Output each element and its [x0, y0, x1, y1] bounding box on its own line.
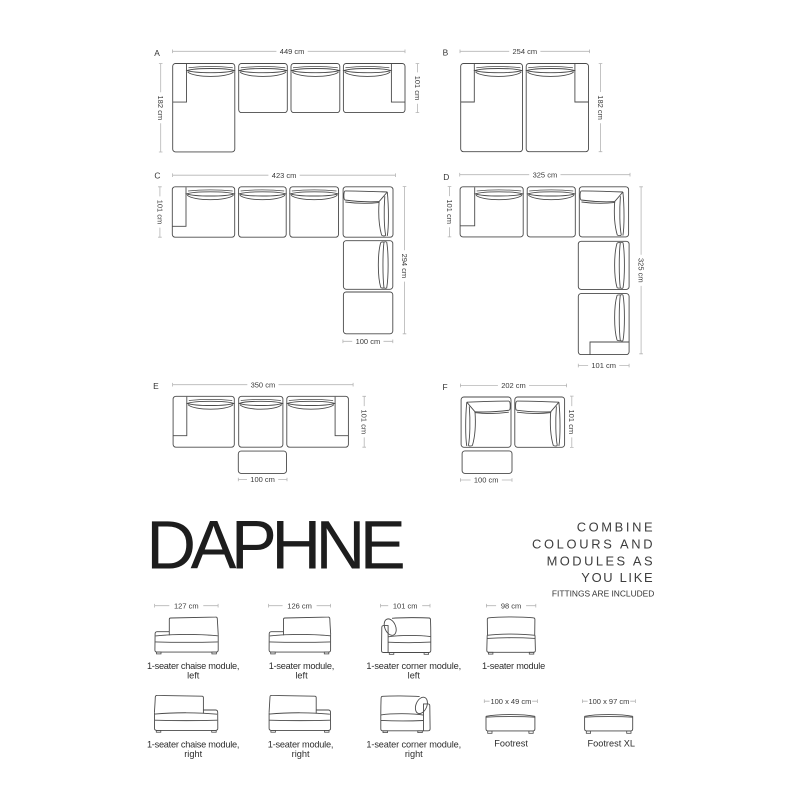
svg-text:B: B	[443, 47, 449, 57]
svg-text:182 cm: 182 cm	[596, 95, 605, 120]
svg-text:left: left	[408, 671, 421, 681]
svg-text:1-seater module,: 1-seater module,	[269, 661, 335, 671]
svg-text:YOU LIKE: YOU LIKE	[581, 570, 653, 585]
svg-text:DAPHNE: DAPHNE	[146, 507, 406, 584]
svg-text:101 cm: 101 cm	[155, 200, 164, 225]
svg-text:1-seater module,: 1-seater module,	[268, 739, 334, 749]
svg-text:101 cm: 101 cm	[413, 76, 422, 101]
svg-text:left: left	[187, 671, 200, 681]
svg-text:COLOURS AND: COLOURS AND	[532, 536, 653, 551]
svg-text:left: left	[295, 671, 308, 681]
svg-text:325 cm: 325 cm	[533, 170, 558, 179]
svg-text:right: right	[405, 749, 423, 759]
svg-text:Footrest: Footrest	[494, 739, 528, 749]
svg-text:126 cm: 126 cm	[287, 601, 312, 610]
svg-text:1-seater corner module,: 1-seater corner module,	[366, 739, 461, 749]
svg-text:right: right	[292, 749, 310, 759]
svg-text:D: D	[443, 172, 449, 182]
svg-text:101 cm: 101 cm	[445, 199, 454, 224]
svg-text:98 cm: 98 cm	[501, 601, 521, 610]
svg-text:449 cm: 449 cm	[280, 47, 305, 56]
svg-text:101 cm: 101 cm	[393, 601, 418, 610]
svg-text:100 cm: 100 cm	[356, 337, 381, 346]
svg-text:325 cm: 325 cm	[637, 258, 646, 283]
svg-text:101 cm: 101 cm	[591, 361, 616, 370]
svg-text:127 cm: 127 cm	[174, 601, 199, 610]
svg-text:100 cm: 100 cm	[474, 476, 499, 485]
svg-text:FITTINGS ARE INCLUDED: FITTINGS ARE INCLUDED	[552, 588, 654, 598]
svg-text:350 cm: 350 cm	[251, 380, 276, 389]
svg-text:1-seater module: 1-seater module	[482, 661, 545, 671]
svg-text:1-seater chaise module,: 1-seater chaise module,	[147, 739, 240, 749]
svg-text:101 cm: 101 cm	[360, 409, 369, 434]
svg-text:182 cm: 182 cm	[156, 95, 165, 120]
svg-text:294 cm: 294 cm	[400, 254, 409, 279]
svg-text:254 cm: 254 cm	[512, 47, 537, 56]
svg-text:MODULES AS: MODULES AS	[547, 553, 653, 568]
svg-text:right: right	[184, 749, 202, 759]
svg-text:100 cm: 100 cm	[250, 475, 275, 484]
svg-text:A: A	[154, 48, 160, 58]
svg-text:100 x 49 cm: 100 x 49 cm	[490, 697, 531, 706]
svg-text:1-seater corner module,: 1-seater corner module,	[366, 661, 461, 671]
svg-text:101 cm: 101 cm	[567, 409, 576, 434]
svg-text:Footrest XL: Footrest XL	[588, 739, 636, 749]
svg-text:E: E	[153, 381, 159, 391]
svg-text:423 cm: 423 cm	[272, 171, 297, 180]
svg-text:100 x 97 cm: 100 x 97 cm	[588, 697, 629, 706]
svg-text:F: F	[442, 382, 447, 392]
svg-text:202 cm: 202 cm	[501, 381, 526, 390]
svg-text:C: C	[154, 171, 160, 181]
svg-text:1-seater chaise module,: 1-seater chaise module,	[147, 661, 240, 671]
